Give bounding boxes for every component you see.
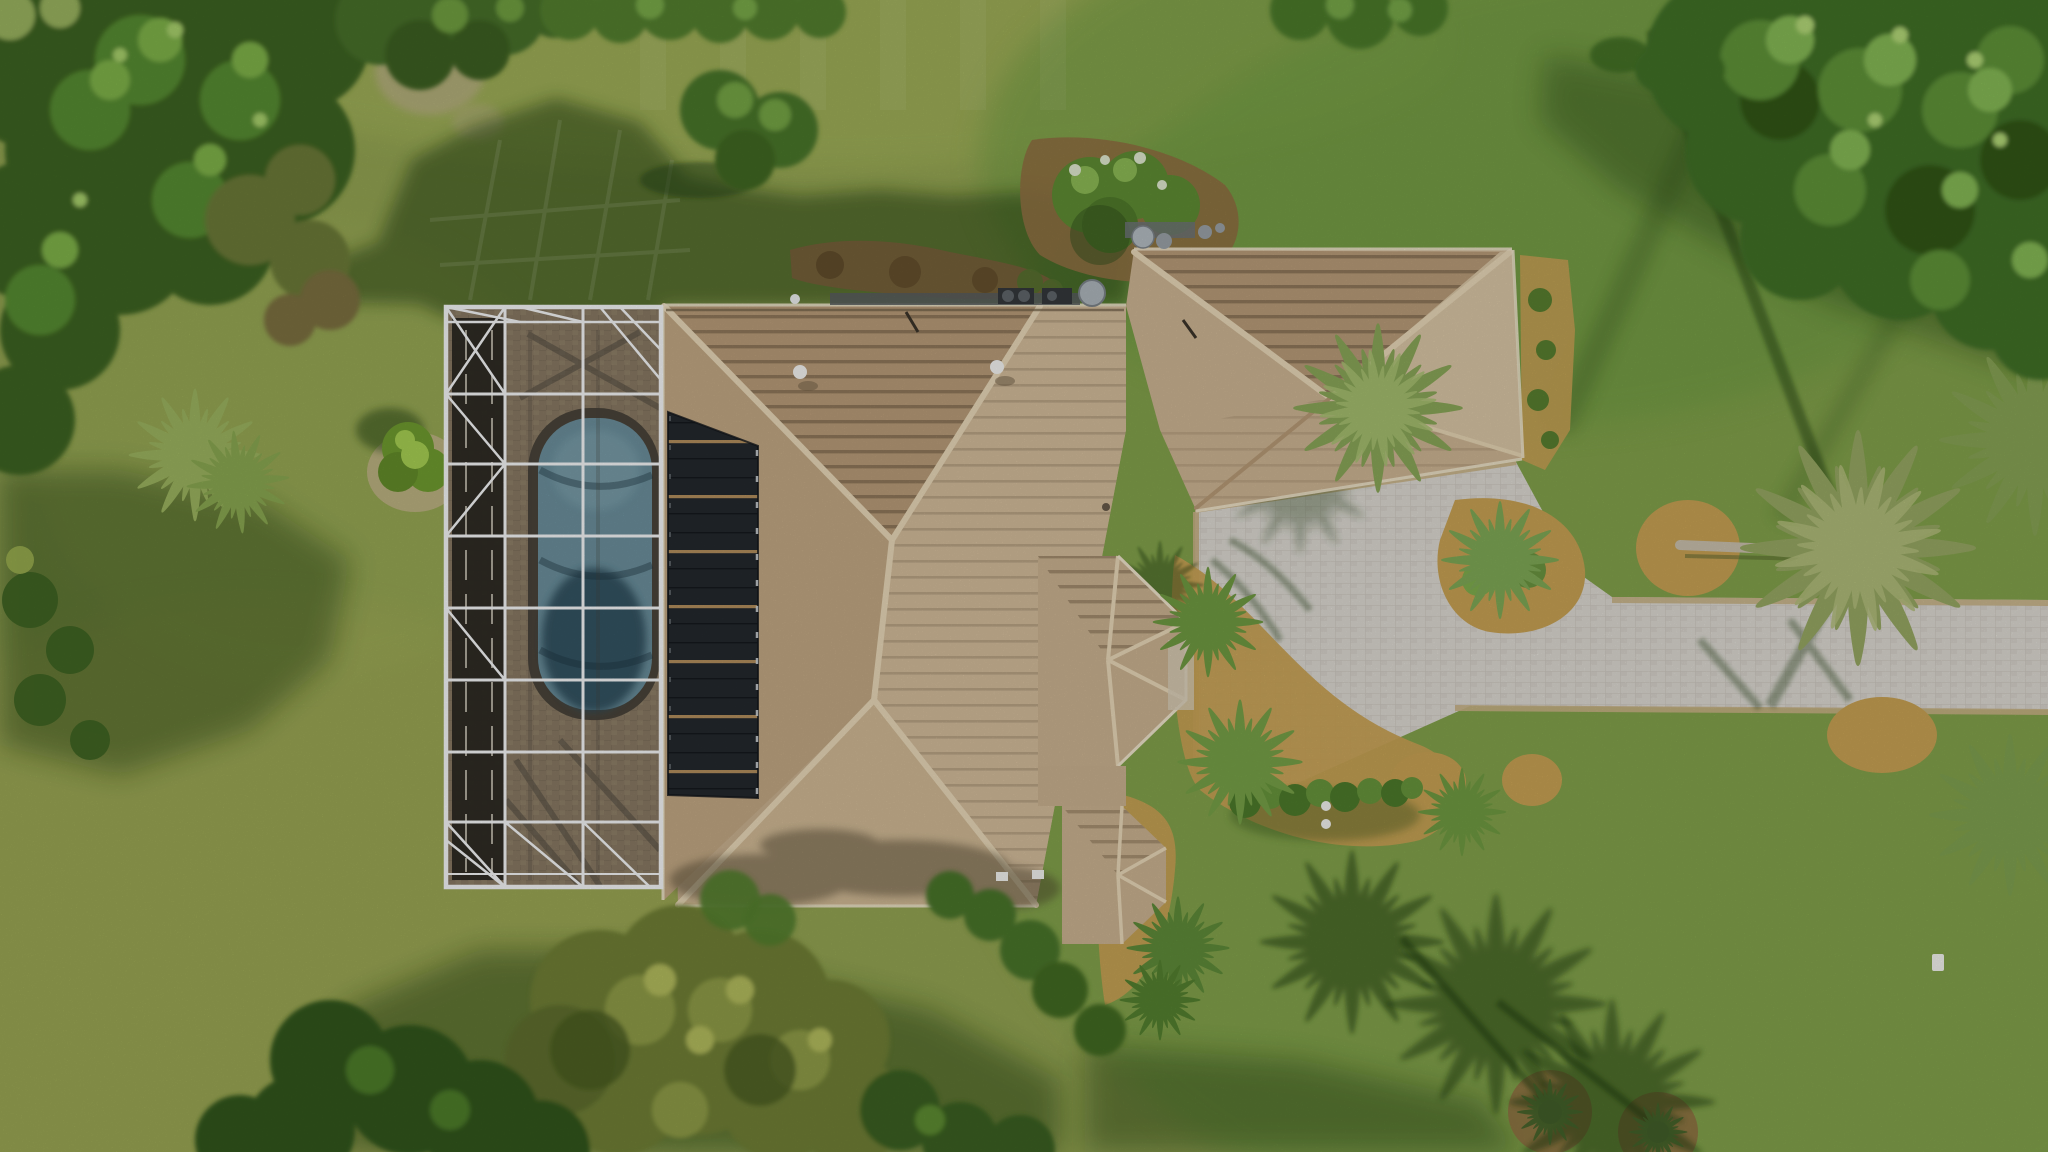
- aerial-photo-stage: [0, 0, 2048, 1152]
- aerial-photo: [0, 0, 2048, 1152]
- photo-grain-overlay: [0, 0, 2048, 1152]
